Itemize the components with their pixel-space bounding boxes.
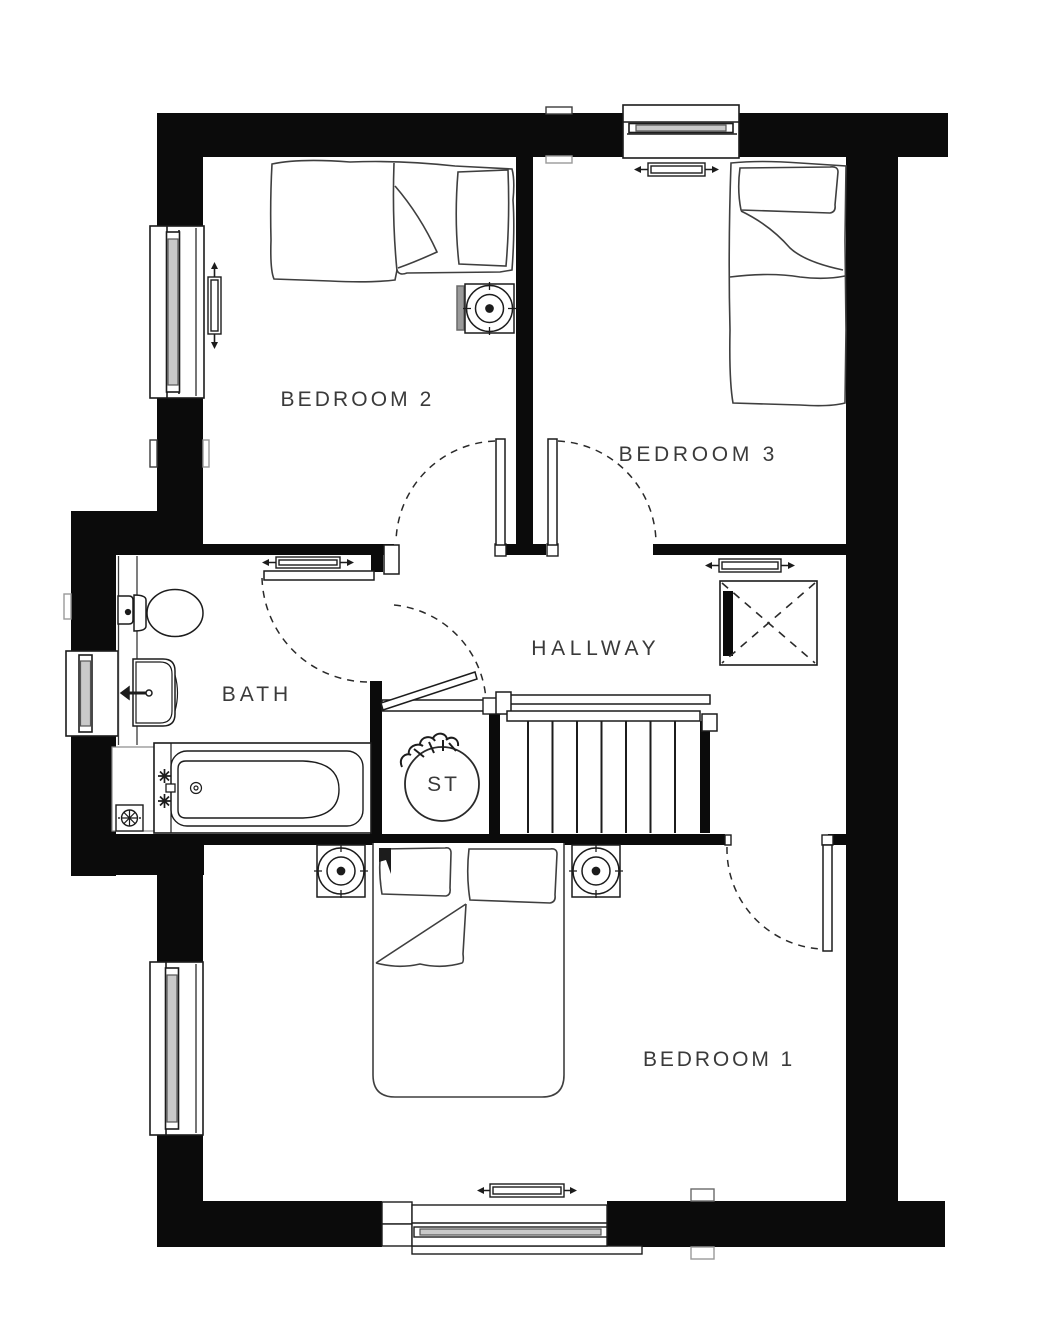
svg-text:BEDROOM 2: BEDROOM 2 — [281, 388, 435, 411]
svg-text:BEDROOM 1: BEDROOM 1 — [643, 1048, 795, 1071]
svg-text:ST: ST — [427, 773, 460, 796]
svg-text:HALLWAY: HALLWAY — [531, 637, 660, 660]
svg-text:BEDROOM 3: BEDROOM 3 — [619, 443, 778, 466]
svg-text:BATH: BATH — [222, 683, 292, 706]
